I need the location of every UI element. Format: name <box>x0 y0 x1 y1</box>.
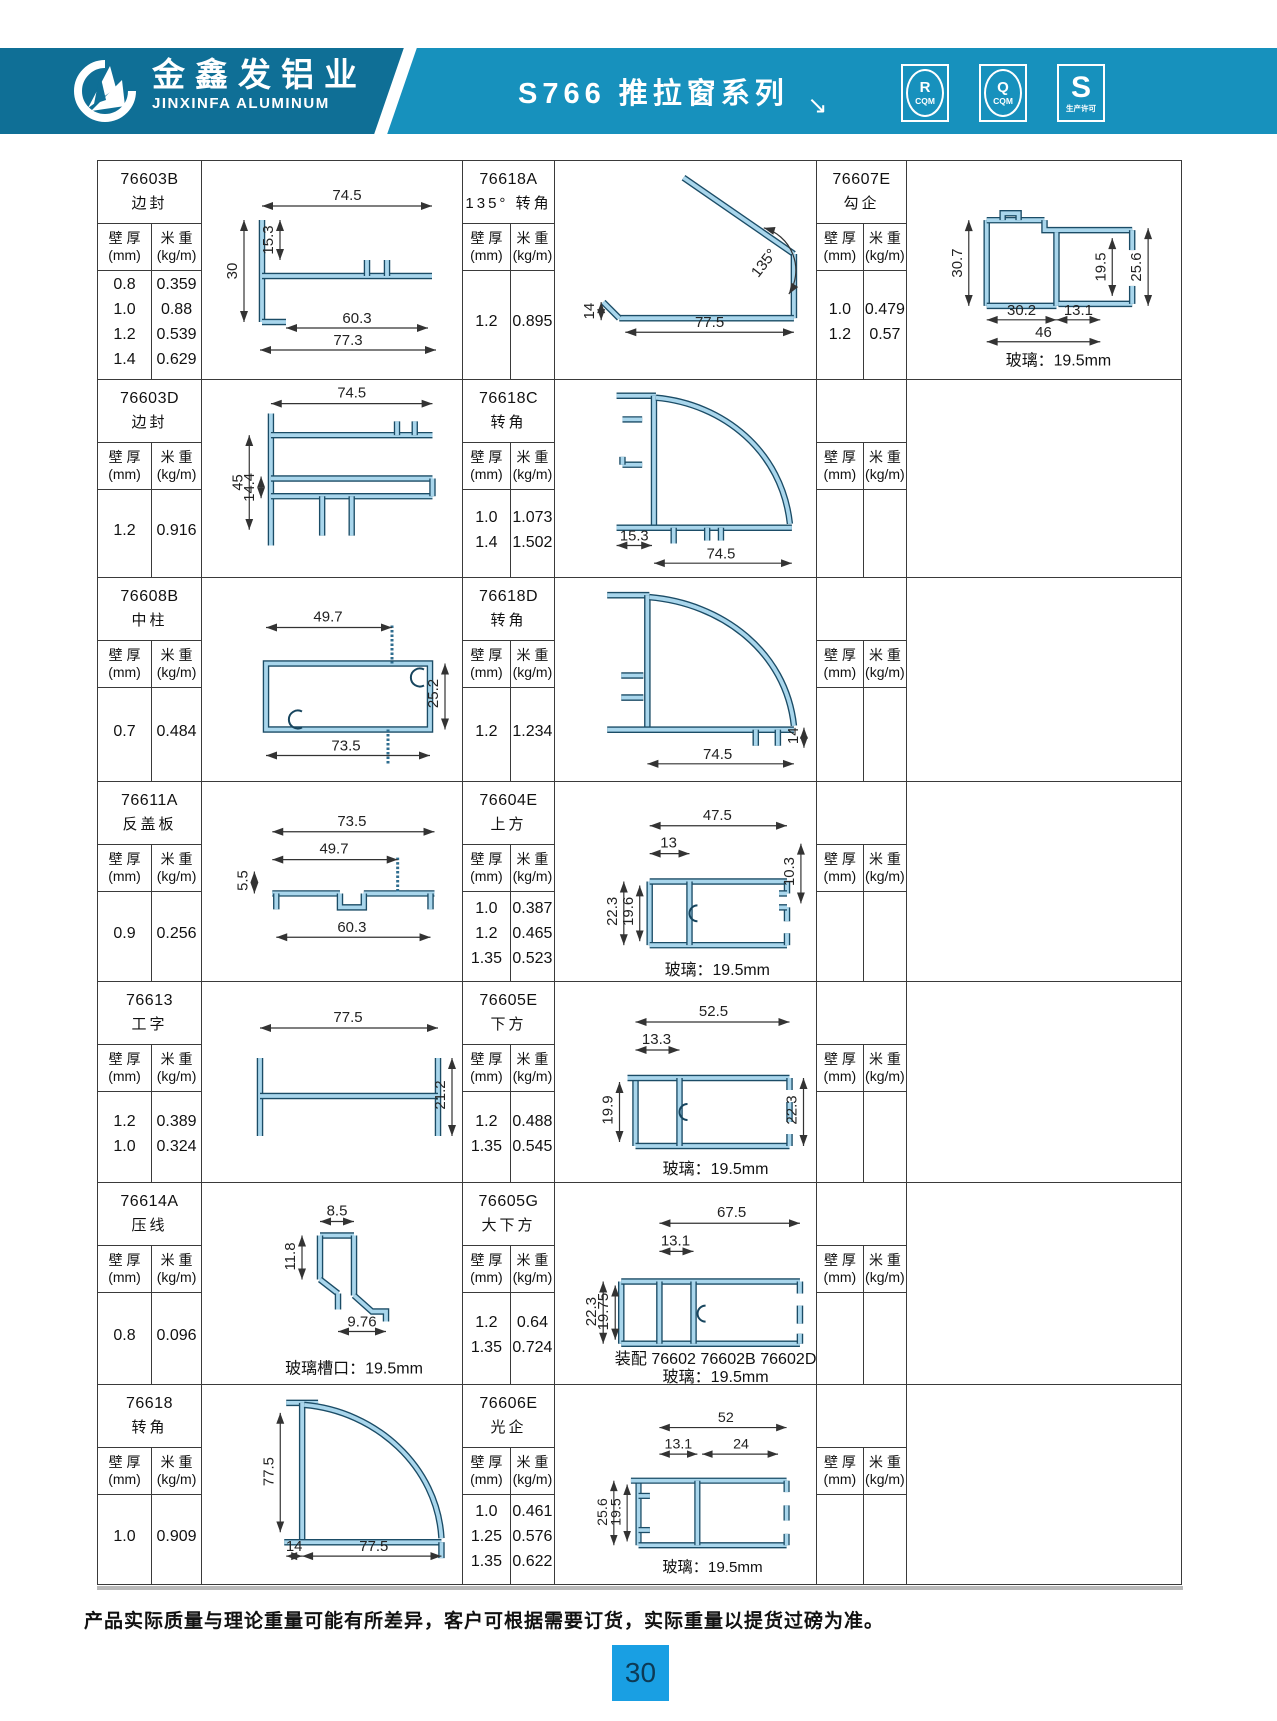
weight-value: 0.488 <box>512 1113 552 1131</box>
profile-code: 76607E <box>832 171 890 189</box>
profile-code-box <box>817 578 906 641</box>
drawing-note: 玻璃：19.5mm <box>662 1559 762 1576</box>
weight-values: 0.3590.880.5390.629 <box>151 271 201 379</box>
drawing-note: 装配 76602 76602B 76602D <box>615 1350 816 1368</box>
dimension-label: 74.5 <box>332 187 361 204</box>
spec-values: 0.81.01.21.40.3590.880.5390.629 <box>98 271 201 379</box>
profile-info-cell: 76605G大下方壁 厚(mm)米 重(kg/m)1.21.350.640.72… <box>462 1183 554 1384</box>
spec-column-headers: 壁 厚(mm)米 重(kg/m) <box>463 224 554 271</box>
thickness-label: 壁 厚 <box>470 1051 502 1068</box>
dimension-label: 77.5 <box>333 1009 362 1026</box>
weight-label: 米 重 <box>516 647 548 664</box>
thickness-values: 1.01.21.35 <box>463 892 510 981</box>
thickness-values <box>817 892 863 981</box>
badge-caption: 生产许可 <box>1066 105 1096 113</box>
thickness-values: 1.01.251.35 <box>463 1495 510 1584</box>
profile-code: 76613 <box>126 992 173 1010</box>
thickness-header: 壁 厚(mm) <box>463 1045 510 1091</box>
thickness-unit: (mm) <box>470 1269 503 1286</box>
weight-header: 米 重(kg/m) <box>510 641 554 687</box>
spec-column-headers: 壁 厚(mm)米 重(kg/m) <box>817 1045 906 1092</box>
spec-values: 1.21.234 <box>463 688 554 781</box>
spec-column-headers: 壁 厚(mm)米 重(kg/m) <box>817 641 906 688</box>
thickness-label: 壁 厚 <box>470 647 502 664</box>
table-row: 76611A反盖板壁 厚(mm)米 重(kg/m)0.90.25673.549.… <box>98 781 1181 981</box>
profile-code-box: 76613工字 <box>98 982 201 1045</box>
profile-drawing-cell <box>906 380 1181 577</box>
dimension-label: 21.2 <box>432 1080 449 1109</box>
profile-name: 边封 <box>131 411 167 432</box>
dimension-label: 25.2 <box>425 679 442 708</box>
dimension-label: 46 <box>1035 324 1052 341</box>
dimension-label: 14 <box>286 1538 303 1555</box>
profile-drawing-cell: 5213.12425.619.5玻璃：19.5mm <box>554 1385 816 1584</box>
weight-values: 0.484 <box>151 688 201 781</box>
thickness-value: 1.2 <box>475 925 497 943</box>
weight-header: 米 重(kg/m) <box>151 1045 201 1091</box>
dimension-label: 60.3 <box>337 919 366 936</box>
weight-value: 0.64 <box>517 1314 548 1332</box>
weight-value: 0.57 <box>869 326 900 344</box>
spec-values: 0.80.096 <box>98 1293 201 1384</box>
profile-code: 76618D <box>479 588 538 606</box>
weight-unit: (kg/m) <box>865 1471 905 1488</box>
dimension-label: 13.3 <box>642 1031 671 1048</box>
profile-code: 76618 <box>126 1395 173 1413</box>
thickness-unit: (mm) <box>470 1068 503 1085</box>
profile-name: 转角 <box>490 411 526 432</box>
thickness-value: 1.2 <box>475 1113 497 1131</box>
thickness-header: 壁 厚(mm) <box>463 641 510 687</box>
profile-code-box: 76605G大下方 <box>463 1183 554 1246</box>
weight-unit: (kg/m) <box>865 1269 905 1286</box>
drawing-note: 玻璃：19.5mm <box>1006 352 1111 370</box>
drawing-note: 玻璃：19.5mm <box>665 961 770 979</box>
dimension-label: 10.3 <box>781 857 798 886</box>
thickness-value: 1.35 <box>471 1138 502 1156</box>
thickness-unit: (mm) <box>108 1471 141 1488</box>
header-band: 金鑫发铝业 JINXINFA ALUMINUM S766 推拉窗系列 ↘ R C… <box>0 48 1277 134</box>
thickness-value: 1.35 <box>471 1339 502 1357</box>
dimension-label: 13.1 <box>1064 302 1093 319</box>
weight-unit: (kg/m) <box>157 466 197 483</box>
profile-code-box <box>817 782 906 845</box>
profile-name: 工字 <box>131 1013 167 1034</box>
thickness-label: 壁 厚 <box>824 1051 856 1068</box>
profile-name: 中柱 <box>131 609 167 630</box>
weight-value: 0.88 <box>161 301 192 319</box>
spec-column-headers: 壁 厚(mm)米 重(kg/m) <box>463 1448 554 1495</box>
table-row: 76603B边封壁 厚(mm)米 重(kg/m)0.81.01.21.40.35… <box>98 161 1181 379</box>
thickness-label: 壁 厚 <box>824 230 856 247</box>
certification-badges: R CQM Q CQM S 生产许可 <box>901 64 1105 122</box>
thickness-value: 1.4 <box>113 351 135 369</box>
thickness-values <box>817 1495 863 1584</box>
weight-header: 米 重(kg/m) <box>863 1448 906 1494</box>
profile-code: 76618C <box>479 390 538 408</box>
thickness-value: 1.0 <box>113 1528 135 1546</box>
profile-drawing-cell: 74.54514.4 <box>201 380 462 577</box>
cqm-r-badge-icon: R CQM <box>901 64 949 122</box>
drawing-note: 玻璃槽口：19.5mm <box>285 1360 423 1378</box>
spec-column-headers: 壁 厚(mm)米 重(kg/m) <box>463 1246 554 1293</box>
profile-info-cell: 76607E勾企壁 厚(mm)米 重(kg/m)1.01.20.4790.57 <box>816 161 906 379</box>
weight-value: 0.096 <box>157 1327 197 1345</box>
profile-name: 转角 <box>490 609 526 630</box>
thickness-values <box>817 688 863 781</box>
profile-drawing-cell <box>906 782 1181 981</box>
weight-label: 米 重 <box>516 851 548 868</box>
spec-column-headers: 壁 厚(mm)米 重(kg/m) <box>817 224 906 271</box>
weight-value: 0.629 <box>157 351 197 369</box>
profile-info-cell: 76618C转角壁 厚(mm)米 重(kg/m)1.01.41.0731.502 <box>462 380 554 577</box>
weight-label: 米 重 <box>869 1051 901 1068</box>
dimension-label: 52.5 <box>699 1003 728 1020</box>
weight-label: 米 重 <box>869 449 901 466</box>
weight-value: 0.256 <box>157 925 197 943</box>
profile-code-box: 76606E光企 <box>463 1385 554 1448</box>
thickness-value: 1.2 <box>475 313 497 331</box>
profile-drawing-cell: 30.719.525.630.213.146玻璃：19.5mm <box>906 161 1181 379</box>
profile-drawing-cell: 135°77.514 <box>554 161 816 379</box>
thickness-value: 0.7 <box>113 723 135 741</box>
weight-unit: (kg/m) <box>157 1269 197 1286</box>
profile-code: 76605G <box>479 1193 539 1211</box>
page-number-badge: 30 <box>612 1645 669 1701</box>
profile-code-box: 76603D边封 <box>98 380 201 443</box>
weight-label: 米 重 <box>161 851 193 868</box>
drawing-note: 玻璃：19.5mm <box>663 1368 769 1384</box>
thickness-unit: (mm) <box>470 466 503 483</box>
dimension-label: 30.7 <box>949 248 966 277</box>
dimension-label: 52 <box>718 1410 734 1426</box>
weight-value: 0.576 <box>512 1528 552 1546</box>
weight-unit: (kg/m) <box>157 664 197 681</box>
spec-values <box>817 1495 906 1584</box>
weight-values: 1.234 <box>510 688 554 781</box>
dimension-label: 5.5 <box>234 870 251 891</box>
profile-drawing-cell: 47.51322.319.610.3玻璃：19.5mm <box>554 782 816 981</box>
spec-values: 1.21.00.3890.324 <box>98 1092 201 1182</box>
spec-column-headers: 壁 厚(mm)米 重(kg/m) <box>98 1246 201 1293</box>
profile-code: 76611A <box>121 792 178 810</box>
weight-label: 米 重 <box>161 1252 193 1269</box>
profile-code-box: 76618D转角 <box>463 578 554 641</box>
thickness-value: 1.2 <box>829 326 851 344</box>
spec-column-headers: 壁 厚(mm)米 重(kg/m) <box>463 1045 554 1092</box>
weight-label: 米 重 <box>869 1454 901 1471</box>
thickness-values: 0.8 <box>98 1293 151 1384</box>
spec-values <box>817 1092 906 1182</box>
profile-drawing-cell: 52.513.319.922.3玻璃：19.5mm <box>554 982 816 1182</box>
profile-code-box <box>817 380 906 443</box>
weight-values: 0.4610.5760.622 <box>510 1495 554 1584</box>
weight-header: 米 重(kg/m) <box>863 1045 906 1091</box>
weight-value: 0.389 <box>157 1113 197 1131</box>
spec-values: 1.20.916 <box>98 490 201 577</box>
profile-code: 76606E <box>479 1395 537 1413</box>
weight-value: 0.479 <box>865 301 905 319</box>
profile-code: 76614A <box>120 1193 178 1211</box>
profile-code: 76604E <box>479 792 537 810</box>
thickness-values: 1.21.0 <box>98 1092 151 1182</box>
weight-unit: (kg/m) <box>157 247 197 264</box>
weight-label: 米 重 <box>161 1051 193 1068</box>
weight-label: 米 重 <box>516 1454 548 1471</box>
thickness-header: 壁 厚(mm) <box>463 443 510 489</box>
thickness-values: 1.21.35 <box>463 1293 510 1384</box>
profile-name: 压线 <box>131 1214 167 1235</box>
thickness-header: 壁 厚(mm) <box>463 1448 510 1494</box>
profile-code-box <box>817 1183 906 1246</box>
profile-code-box: 76607E勾企 <box>817 161 906 224</box>
weight-unit: (kg/m) <box>157 868 197 885</box>
thickness-header: 壁 厚(mm) <box>817 224 863 270</box>
table-row: 76603D边封壁 厚(mm)米 重(kg/m)1.20.91674.54514… <box>98 379 1181 577</box>
thickness-value: 1.2 <box>475 1314 497 1332</box>
dimension-label: 11.8 <box>282 1242 299 1270</box>
thickness-label: 壁 厚 <box>824 1252 856 1269</box>
dimension-label: 74.5 <box>707 546 736 562</box>
dimension-label: 19.5 <box>608 1498 624 1526</box>
series-block: S766 推拉窗系列 ↘ <box>518 70 827 112</box>
thickness-header: 壁 厚(mm) <box>817 1045 863 1091</box>
profile-name: 转角 <box>131 1416 167 1437</box>
weight-values: 0.4790.57 <box>863 271 906 379</box>
weight-values <box>863 688 906 781</box>
weight-value: 1.234 <box>512 723 552 741</box>
weight-values: 1.0731.502 <box>510 490 554 577</box>
dimension-label: 13.1 <box>661 1232 690 1249</box>
table-row: 76614A压线壁 厚(mm)米 重(kg/m)0.80.0968.511.89… <box>98 1182 1181 1384</box>
thickness-value: 1.0 <box>475 509 497 527</box>
weight-value: 0.909 <box>157 1528 197 1546</box>
weight-value: 0.465 <box>512 925 552 943</box>
thickness-values: 1.2 <box>463 688 510 781</box>
dimension-label: 77.5 <box>359 1538 388 1555</box>
weight-values: 0.256 <box>151 892 201 981</box>
badge-caption: CQM <box>915 97 935 106</box>
profile-drawing-cell: 73.549.75.560.3 <box>201 782 462 981</box>
weight-header: 米 重(kg/m) <box>863 845 906 891</box>
profile-info-cell: 76603B边封壁 厚(mm)米 重(kg/m)0.81.01.21.40.35… <box>98 161 201 379</box>
profile-drawing-cell: 8.511.89.76玻璃槽口：19.5mm <box>201 1183 462 1384</box>
spec-values: 1.01.20.4790.57 <box>817 271 906 379</box>
weight-label: 米 重 <box>869 851 901 868</box>
spec-values <box>817 1293 906 1384</box>
dimension-label: 13.1 <box>665 1436 693 1452</box>
profile-name: 反盖板 <box>122 813 176 834</box>
profile-info-cell: 76618D转角壁 厚(mm)米 重(kg/m)1.21.234 <box>462 578 554 781</box>
profile-code-box <box>817 1385 906 1448</box>
profile-code-box <box>817 982 906 1045</box>
weight-unit: (kg/m) <box>513 1068 553 1085</box>
thickness-values: 1.01.2 <box>817 271 863 379</box>
profile-name: 上方 <box>490 813 526 834</box>
weight-values: 0.3890.324 <box>151 1092 201 1182</box>
thickness-label: 壁 厚 <box>470 1252 502 1269</box>
weight-values: 0.096 <box>151 1293 201 1384</box>
profile-drawing-cell <box>906 1385 1181 1584</box>
weight-header: 米 重(kg/m) <box>863 641 906 687</box>
dimension-label: 135° <box>748 246 781 281</box>
dimension-label: 73.5 <box>337 813 366 830</box>
dimension-label: 60.3 <box>342 310 371 327</box>
thickness-header: 壁 厚(mm) <box>817 845 863 891</box>
dimension-label: 19.6 <box>620 897 637 926</box>
thickness-header: 壁 厚(mm) <box>817 1246 863 1292</box>
thickness-values: 1.2 <box>98 490 151 577</box>
profile-code: 76608B <box>120 588 178 606</box>
thickness-label: 壁 厚 <box>109 1454 141 1471</box>
thickness-label: 壁 厚 <box>470 230 502 247</box>
thickness-label: 壁 厚 <box>109 647 141 664</box>
weight-unit: (kg/m) <box>513 1471 553 1488</box>
weight-value: 0.539 <box>157 326 197 344</box>
dimension-label: 15.3 <box>620 529 649 545</box>
thickness-values: 0.7 <box>98 688 151 781</box>
weight-label: 米 重 <box>869 647 901 664</box>
dimension-label: 19.5 <box>1092 252 1109 281</box>
spec-values: 1.20.895 <box>463 271 554 379</box>
dimension-label: 77.3 <box>333 332 362 349</box>
thickness-values: 1.01.4 <box>463 490 510 577</box>
thickness-value: 1.2 <box>113 326 135 344</box>
weight-value: 0.916 <box>157 522 197 540</box>
weight-value: 0.387 <box>512 900 552 918</box>
weight-unit: (kg/m) <box>513 466 553 483</box>
weight-values <box>863 892 906 981</box>
thickness-value: 1.0 <box>829 301 851 319</box>
weight-values: 0.895 <box>510 271 554 379</box>
thickness-unit: (mm) <box>824 466 857 483</box>
table-row: 76618转角壁 厚(mm)米 重(kg/m)1.00.90977.51477.… <box>98 1384 1181 1584</box>
profile-code-box: 76618C转角 <box>463 380 554 443</box>
spec-column-headers: 壁 厚(mm)米 重(kg/m) <box>98 224 201 271</box>
weight-values: 0.3870.4650.523 <box>510 892 554 981</box>
spec-column-headers: 壁 厚(mm)米 重(kg/m) <box>98 1448 201 1495</box>
weight-value: 0.359 <box>157 276 197 294</box>
dimension-label: 77.5 <box>260 1457 277 1486</box>
profile-info-cell: 76605E下方壁 厚(mm)米 重(kg/m)1.21.350.4880.54… <box>462 982 554 1182</box>
profile-name: 大下方 <box>481 1214 535 1235</box>
weight-unit: (kg/m) <box>865 466 905 483</box>
table-row: 76613工字壁 厚(mm)米 重(kg/m)1.21.00.3890.3247… <box>98 981 1181 1182</box>
weight-header: 米 重(kg/m) <box>510 845 554 891</box>
profile-name: 边封 <box>131 192 167 213</box>
badge-letter: S <box>1071 73 1091 103</box>
spec-column-headers: 壁 厚(mm)米 重(kg/m) <box>463 845 554 892</box>
thickness-label: 壁 厚 <box>109 449 141 466</box>
thickness-values: 0.9 <box>98 892 151 981</box>
weight-unit: (kg/m) <box>157 1068 197 1085</box>
profile-drawing-cell: 67.513.122.319.75装配 76602 76602B 76602D玻… <box>554 1183 816 1384</box>
thickness-values <box>817 1092 863 1182</box>
profile-name: 下方 <box>490 1013 526 1034</box>
weight-header: 米 重(kg/m) <box>510 1045 554 1091</box>
dimension-label: 30.2 <box>1007 302 1036 319</box>
spec-column-headers: 壁 厚(mm)米 重(kg/m) <box>98 845 201 892</box>
profile-drawing-cell: 77.521.2 <box>201 982 462 1182</box>
spec-values: 1.01.21.350.3870.4650.523 <box>463 892 554 981</box>
company-block: 金鑫发铝业 JINXINFA ALUMINUM <box>152 57 367 112</box>
weight-value: 0.895 <box>512 313 552 331</box>
weight-value: 0.724 <box>512 1339 552 1357</box>
weight-unit: (kg/m) <box>865 247 905 264</box>
dimension-label: 24 <box>733 1436 749 1452</box>
weight-header: 米 重(kg/m) <box>863 224 906 270</box>
dimension-label: 19.9 <box>600 1095 617 1124</box>
profile-drawing-cell: 15.374.5 <box>554 380 816 577</box>
thickness-value: 1.2 <box>113 1113 135 1131</box>
spec-values: 1.21.350.4880.545 <box>463 1092 554 1182</box>
weight-values: 0.909 <box>151 1495 201 1584</box>
profile-info-cell: 76611A反盖板壁 厚(mm)米 重(kg/m)0.90.256 <box>98 782 201 981</box>
profile-info-cell: 76603D边封壁 厚(mm)米 重(kg/m)1.20.916 <box>98 380 201 577</box>
thickness-value: 1.35 <box>471 1553 502 1571</box>
spec-values: 0.90.256 <box>98 892 201 981</box>
weight-label: 米 重 <box>516 1252 548 1269</box>
profile-info-cell: 壁 厚(mm)米 重(kg/m) <box>816 1385 906 1584</box>
thickness-header: 壁 厚(mm) <box>817 641 863 687</box>
dimension-label: 14 <box>581 303 598 320</box>
dimension-label: 22.3 <box>604 897 621 926</box>
thickness-unit: (mm) <box>470 247 503 264</box>
profile-code: 76603B <box>120 171 178 189</box>
weight-header: 米 重(kg/m) <box>863 443 906 489</box>
thickness-value: 1.2 <box>113 522 135 540</box>
thickness-unit: (mm) <box>108 1068 141 1085</box>
profile-drawing-cell: 74.515.33060.377.3 <box>201 161 462 379</box>
spec-values: 1.00.909 <box>98 1495 201 1584</box>
qs-production-license-badge-icon: S 生产许可 <box>1057 64 1105 122</box>
company-name-cn: 金鑫发铝业 <box>152 57 367 93</box>
weight-value: 1.502 <box>512 534 552 552</box>
profile-info-cell: 76618A135° 转角壁 厚(mm)米 重(kg/m)1.20.895 <box>462 161 554 379</box>
weight-unit: (kg/m) <box>513 1269 553 1286</box>
thickness-unit: (mm) <box>824 1471 857 1488</box>
thickness-label: 壁 厚 <box>109 1252 141 1269</box>
spec-values: 0.70.484 <box>98 688 201 781</box>
weight-label: 米 重 <box>516 230 548 247</box>
thickness-value: 1.0 <box>475 1503 497 1521</box>
weight-header: 米 重(kg/m) <box>151 1246 201 1292</box>
weight-values: 0.916 <box>151 490 201 577</box>
thickness-value: 1.2 <box>475 723 497 741</box>
profile-drawing-cell: 49.725.273.5 <box>201 578 462 781</box>
weight-header: 米 重(kg/m) <box>510 443 554 489</box>
profile-code: 76605E <box>479 992 537 1010</box>
weight-value: 1.073 <box>512 509 552 527</box>
dimension-label: 74.5 <box>337 386 366 402</box>
weight-header: 米 重(kg/m) <box>863 1246 906 1292</box>
dimension-label: 25.6 <box>1128 252 1145 281</box>
series-title: S766 推拉窗系列 <box>518 78 789 110</box>
thickness-value: 1.0 <box>475 900 497 918</box>
profile-info-cell: 76606E光企壁 厚(mm)米 重(kg/m)1.01.251.350.461… <box>462 1385 554 1584</box>
thickness-header: 壁 厚(mm) <box>817 1448 863 1494</box>
profile-code: 76618A <box>479 171 537 189</box>
thickness-header: 壁 厚(mm) <box>463 224 510 270</box>
thickness-values: 1.2 <box>463 271 510 379</box>
spec-values: 1.01.251.350.4610.5760.622 <box>463 1495 554 1584</box>
cqm-q-badge-icon: Q CQM <box>979 64 1027 122</box>
thickness-label: 壁 厚 <box>824 1454 856 1471</box>
profile-name: 135° 转角 <box>465 192 551 213</box>
thickness-unit: (mm) <box>470 868 503 885</box>
weight-label: 米 重 <box>161 647 193 664</box>
weight-label: 米 重 <box>869 1252 901 1269</box>
